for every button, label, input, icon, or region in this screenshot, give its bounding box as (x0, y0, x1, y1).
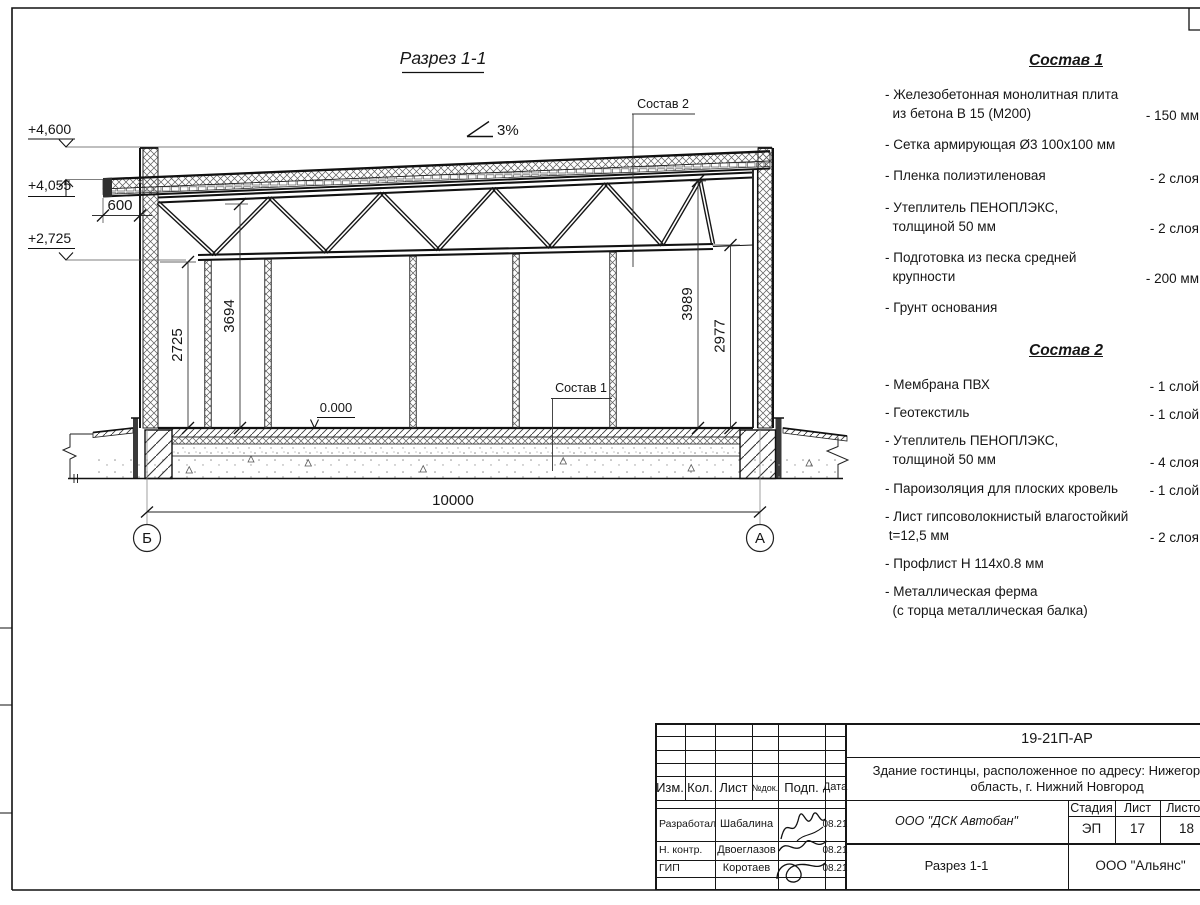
elev-2725: +2,725 (28, 230, 71, 246)
sostav-1-title: Состав 1 (885, 52, 1199, 70)
material-item: - Сетка армирующая Ø3 100х100 мм (885, 135, 1199, 154)
material-name: - Металлическая ферма (с торца металличе… (885, 582, 1088, 620)
dim-2977: 2977 (712, 319, 729, 352)
col-podp: Подп. (778, 776, 825, 800)
dim-2725: 2725 (169, 328, 186, 361)
dim-600: 600 (107, 197, 132, 214)
material-item: - Лист гипсоволокнистый влагостойкий t=1… (885, 507, 1199, 545)
material-name: - Грунт основания (885, 298, 997, 317)
material-item: - Подготовка из песка средней крупности-… (885, 248, 1199, 286)
material-value: - 2 слоя (1144, 171, 1199, 186)
vertical-dimensions: 2725 3694 3989 2977 (160, 175, 740, 434)
drawing-name: Разрез 1-1 (845, 843, 1068, 889)
axis-label-left: Б (142, 530, 152, 547)
ground-break-left (63, 434, 76, 479)
signature-others (773, 835, 831, 887)
signer-role: ГИП (655, 860, 719, 877)
slope-label: 3% (497, 122, 519, 139)
view-title: Разрез 1-1 (400, 48, 487, 73)
sheets-label: Листов (1160, 800, 1200, 816)
view-title-text: Разрез 1-1 (400, 48, 487, 68)
signer-role: Н. контр. (655, 841, 719, 860)
material-name: - Пленка полиэтиленовая (885, 166, 1046, 185)
material-item: - Пленка полиэтиленовая- 2 слоя (885, 166, 1199, 185)
material-value: - 1 слой (1144, 483, 1199, 498)
col-ndok: №док. (752, 776, 778, 800)
material-value: - 200 мм (1140, 271, 1199, 286)
material-name: - Утеплитель ПЕНОПЛЭКС, толщиной 50 мм (885, 198, 1058, 236)
drawing-sheet: { "sheet": { "drawing_title": "Разрез 1-… (0, 0, 1200, 900)
doc-number: 19-21П-АР (845, 723, 1200, 757)
col-kol: Кол. (685, 776, 715, 800)
elev-4600: +4,600 (28, 121, 71, 137)
material-name: - Пароизоляция для плоских кровель (885, 479, 1118, 498)
floor-slab (68, 428, 843, 483)
project-name-line2: область, г. Нижний Новгород (970, 779, 1143, 795)
material-name: - Мембрана ПВХ (885, 375, 990, 394)
title-block: Изм. Кол. Лист №док. Подп. Дата Разработ… (655, 723, 1200, 890)
sostav-2-items: - Мембрана ПВХ- 1 слой- Геотекстиль- 1 с… (885, 375, 1199, 621)
material-name: - Сетка армирующая Ø3 100х100 мм (885, 135, 1115, 154)
material-value: - 150 мм (1140, 108, 1199, 123)
axis-label-right: А (755, 530, 765, 547)
span-dimension: 10000 (432, 492, 474, 509)
material-item: - Металлическая ферма (с торца металличе… (885, 582, 1199, 620)
col-izm: Изм. (655, 776, 685, 800)
material-name: - Железобетонная монолитная плита из бет… (885, 85, 1118, 123)
signer-role: Разработал (655, 808, 719, 841)
material-name: - Профлист Н 114х0.8 мм (885, 554, 1044, 573)
dim-3694: 3694 (221, 299, 238, 332)
zero-level-mark: 0.000 (311, 400, 356, 428)
stage-label: Стадия (1068, 800, 1115, 816)
sostav-2-panel: Состав 2 - Мембрана ПВХ- 1 слой- Геотекс… (885, 342, 1199, 630)
project-name-line1: Здание гостинцы, расположенное по адресу… (873, 763, 1200, 779)
material-value: - 1 слой (1144, 379, 1199, 394)
signer-name: Шабалина (715, 808, 778, 841)
sheets-value: 18 (1160, 816, 1200, 843)
material-name: - Лист гипсоволокнистый влагостойкий t=1… (885, 507, 1128, 545)
material-name: - Подготовка из песка средней крупности (885, 248, 1076, 286)
col-list: Лист (715, 776, 752, 800)
dim-3989: 3989 (679, 287, 696, 320)
contractor: ООО "ДСК Автобан" (845, 800, 1068, 843)
right-wall (753, 148, 773, 428)
material-value: - 1 слой (1144, 407, 1199, 422)
interior-columns (205, 252, 617, 428)
material-value: - 2 слоя (1144, 221, 1199, 236)
material-item: - Геотекстиль- 1 слой (885, 403, 1199, 422)
material-item: - Пароизоляция для плоских кровель- 1 сл… (885, 479, 1199, 498)
material-item: - Железобетонная монолитная плита из бет… (885, 85, 1199, 123)
elev-4055: +4,055 (28, 177, 71, 193)
material-value: - 2 слоя (1144, 530, 1199, 545)
material-name: - Геотекстиль (885, 403, 969, 422)
callout-sostav1-label: Состав 1 (555, 381, 607, 395)
sheet-value: 17 (1115, 816, 1160, 843)
stage-value: ЭП (1068, 816, 1115, 843)
signer-name: Двоеглазов (715, 841, 778, 860)
material-item: - Профлист Н 114х0.8 мм (885, 554, 1199, 573)
material-item: - Утеплитель ПЕНОПЛЭКС, толщиной 50 мм- … (885, 198, 1199, 236)
callout-sostav2-label: Состав 2 (637, 97, 689, 111)
signer-name: Коротаев (715, 860, 778, 877)
material-name: - Утеплитель ПЕНОПЛЭКС, толщиной 50 мм (885, 431, 1058, 469)
material-item: - Мембрана ПВХ- 1 слой (885, 375, 1199, 394)
zero-level-label: 0.000 (320, 400, 353, 415)
col-data: Дата (825, 776, 845, 800)
sheet-label: Лист (1115, 800, 1160, 816)
sostav-1-items: - Железобетонная монолитная плита из бет… (885, 85, 1199, 317)
slope-mark: 3% (467, 122, 519, 140)
sostav-2-title: Состав 2 (885, 342, 1199, 360)
material-item: - Утеплитель ПЕНОПЛЭКС, толщиной 50 мм- … (885, 431, 1199, 469)
organization: ООО "Альянс" (1068, 843, 1200, 889)
material-value: - 4 слоя (1144, 455, 1199, 470)
project-name: Здание гостинцы, расположенное по адресу… (845, 757, 1200, 800)
material-item: - Грунт основания (885, 298, 1199, 317)
sostav-1-panel: Состав 1 - Железобетонная монолитная пли… (885, 52, 1199, 329)
canopy-end-cap (103, 178, 112, 198)
sheet-corner-box (1189, 8, 1200, 30)
